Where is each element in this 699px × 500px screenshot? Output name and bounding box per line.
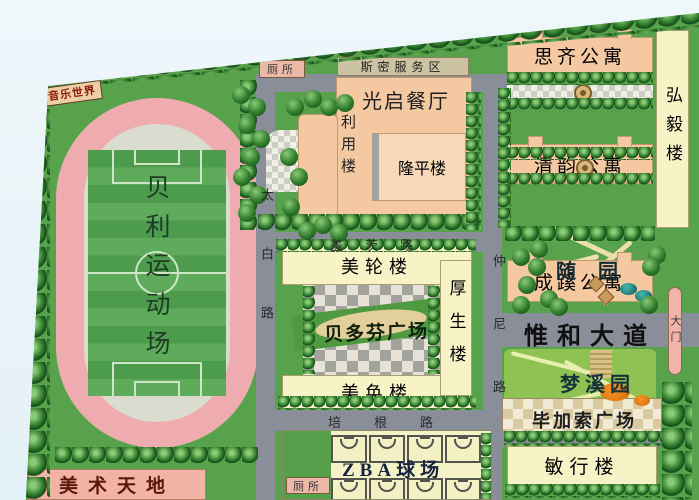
minxing-building: 敏行楼 — [507, 446, 657, 485]
goal-box-top — [134, 150, 180, 165]
tree-row — [55, 447, 258, 463]
tree — [550, 298, 568, 316]
meilun-building-label: 美轮楼 — [341, 253, 413, 279]
liyong-building-wing — [298, 114, 338, 218]
gates-road-label: 盖茨路 — [330, 235, 435, 254]
taibai-road-label: 太白路 — [257, 188, 276, 365]
tree — [642, 258, 660, 276]
tree — [280, 148, 298, 166]
tree-row — [278, 396, 476, 410]
tree — [248, 98, 266, 116]
main-gate-label: 大门 — [667, 315, 683, 347]
art-world-label: 美术天地 — [59, 471, 175, 498]
guangqi-dining-hall-label: 光启餐厅 — [348, 85, 464, 114]
tree — [286, 98, 304, 116]
tree-row — [507, 98, 653, 110]
minxing-building-label: 敏行楼 — [544, 452, 619, 479]
tree — [518, 276, 536, 294]
picasso-square-label: 毕加索广场 — [532, 407, 637, 433]
tree — [282, 198, 300, 216]
hedge-row — [504, 431, 662, 446]
goal-box-bottom — [134, 381, 180, 396]
tree-row — [507, 147, 653, 160]
tree-row — [258, 214, 480, 231]
toilet-south: 厕所 — [286, 477, 330, 494]
tree-row — [507, 72, 653, 85]
basketball-court — [445, 478, 481, 500]
smith-service-area-label: 斯密服务区 — [360, 58, 445, 75]
toilet-north-label: 厕所 — [267, 61, 297, 77]
beili-sports-field-label: 贝利运动场 — [137, 174, 173, 369]
siqi-apartment-label: 思齐公寓 — [534, 42, 626, 69]
sui-garden-label: 随园 — [556, 255, 640, 284]
tree — [640, 296, 658, 314]
campus-map: 贝利运动场 音乐世界 太白路 仲尼路 盖茨路 培根路 惟和大道 大门 斯密服务区… — [0, 0, 699, 500]
tree — [290, 168, 308, 186]
tree-row — [428, 286, 440, 374]
tree-row — [303, 286, 315, 374]
flower-bed — [634, 395, 650, 406]
basketball-court — [445, 435, 481, 463]
tree — [528, 258, 546, 276]
tree — [238, 116, 256, 134]
hongyi-building-label: 弘毅楼 — [660, 86, 685, 173]
housheng-building-label: 厚生楼 — [444, 279, 469, 378]
hongyi-building: 弘毅楼 — [656, 30, 689, 228]
tree-row — [498, 88, 511, 228]
tree-row — [24, 86, 50, 500]
tree-row — [466, 92, 481, 230]
zba-courts-label: ZBA球场 — [342, 455, 444, 482]
tree — [530, 240, 548, 258]
bacon-road-label: 培根路 — [328, 412, 466, 431]
weihe-avenue-label: 惟和大道 — [524, 316, 656, 351]
longping-building: 隆平楼 — [372, 133, 466, 201]
tree — [512, 248, 530, 266]
toilet-south-label: 厕所 — [293, 478, 323, 494]
tree — [233, 168, 251, 186]
housheng-building: 厚生楼 — [440, 260, 472, 396]
toilet-north: 厕所 — [259, 60, 305, 78]
art-world-building: 美术天地 — [28, 469, 206, 500]
tree — [242, 148, 260, 166]
tree — [232, 86, 250, 104]
tree-row — [507, 173, 653, 185]
tree-row — [505, 484, 660, 498]
liyong-building-label: 利用楼 — [337, 114, 358, 180]
music-world-label: 音乐世界 — [41, 80, 103, 107]
zhongni-road-label: 仲尼路 — [489, 254, 508, 443]
tree — [512, 296, 530, 314]
campus-grounds: 贝利运动场 音乐世界 太白路 仲尼路 盖茨路 培根路 惟和大道 大门 斯密服务区… — [0, 0, 699, 500]
tree — [252, 130, 270, 148]
mengxi-garden-label: 梦溪园 — [560, 368, 635, 397]
tree-row — [662, 382, 692, 500]
beethoven-square-label: 贝多芬广场 — [324, 316, 430, 347]
tree — [238, 204, 256, 222]
longping-building-label: 隆平楼 — [398, 155, 446, 179]
tree-row — [505, 226, 655, 241]
main-gate: 大门 — [668, 287, 682, 375]
